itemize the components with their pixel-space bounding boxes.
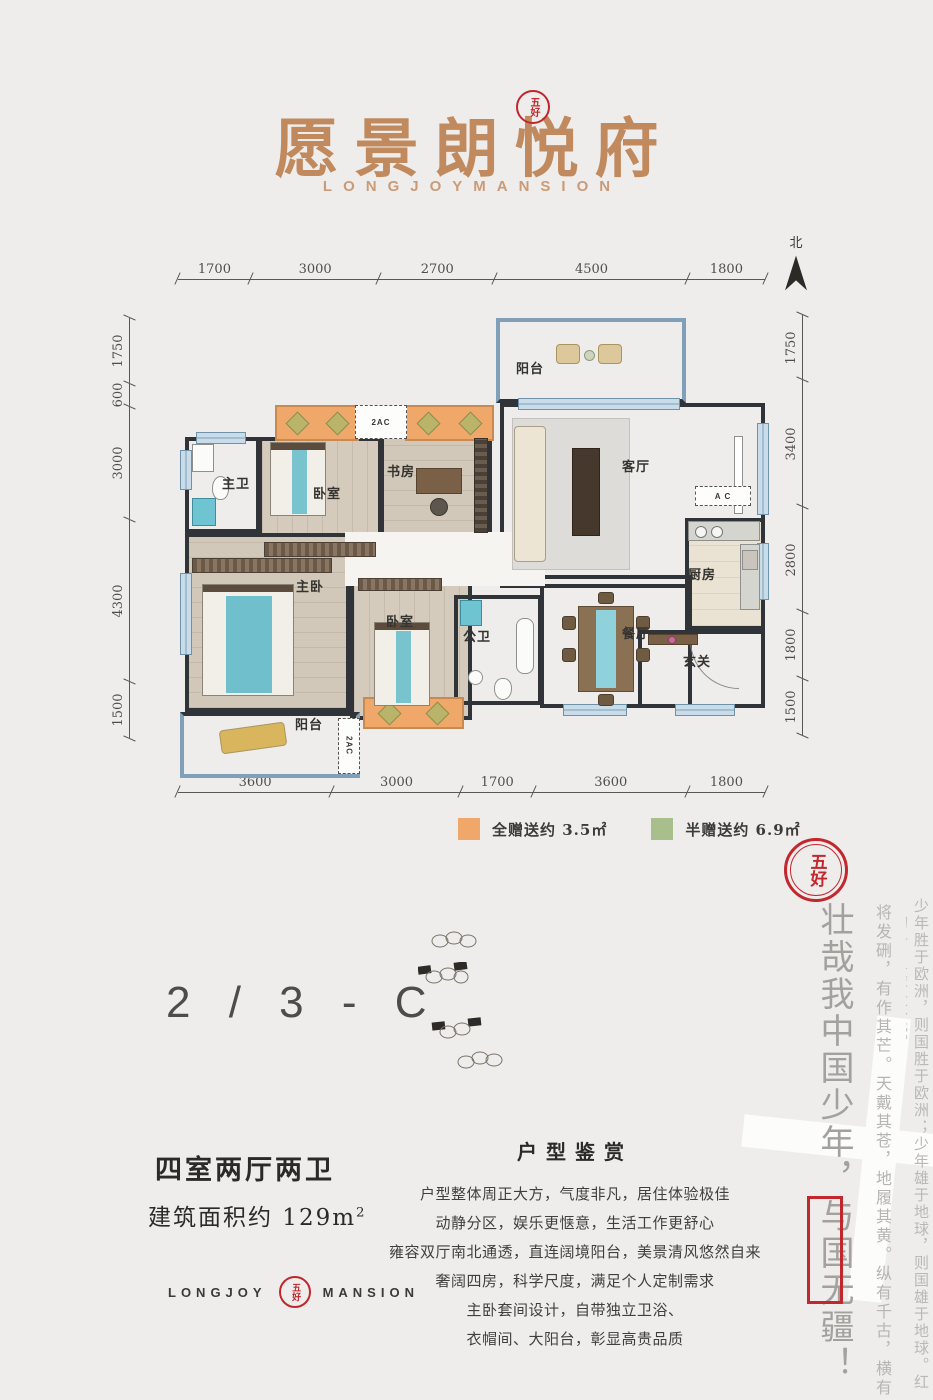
dining-chair (562, 648, 576, 662)
calligraphy-seal-icon: 五好 (784, 838, 848, 902)
brand-seal-text: 五好 (528, 97, 538, 117)
furniture-sketch-icon (456, 1048, 504, 1070)
unit-area-text: 建筑面积约 129m (148, 1205, 356, 1231)
room-label-bedroom2: 卧室 (313, 483, 341, 502)
furniture-sketch-icon (430, 1016, 482, 1040)
room-label-kitchen: 厨房 (688, 564, 716, 583)
wardrobe (358, 578, 442, 591)
dimension-ruler-left: 1750 600 3000 4300 1500 (112, 318, 130, 738)
stove (742, 550, 758, 570)
dim-label: 4500 (495, 262, 688, 277)
bed (374, 622, 430, 706)
gift-strip-bay-window-1 (275, 405, 359, 441)
master-bed (202, 584, 294, 696)
bookshelf (474, 438, 488, 533)
furniture-sketch-icon (430, 928, 478, 950)
kitchen-counter (688, 521, 760, 541)
desk-chair (430, 498, 448, 516)
dim-label: 1800 (784, 629, 799, 662)
ac-label: 2AC (345, 736, 354, 755)
legend-label: 半赠送约 6.9㎡ (685, 819, 800, 840)
window (180, 450, 192, 490)
ac-platform-top: 2AC (355, 405, 407, 439)
north-arrow-icon (785, 255, 807, 291)
brand-logo-english: LONGJOYMANSION (0, 178, 933, 195)
room-label-master-bath: 主卫 (222, 473, 250, 492)
calligraphy-column-2: 将发硎，有作其芒。天戴其苍，地履其黄。纵有千古，横有八荒。 (872, 904, 894, 1400)
room-label-living: 客厅 (622, 456, 650, 475)
dim-label: 1700 (178, 262, 251, 277)
unit-area: 建筑面积约 129m2 (148, 1198, 367, 1232)
appreciation-title: 户型鉴赏 (365, 1136, 785, 1165)
footer-word-left: LONGJOY (168, 1285, 267, 1300)
dimension-ruler-top: 1700 3000 2700 4500 1800 (178, 262, 765, 280)
pillow-icon (325, 411, 349, 435)
legend-swatch-green (651, 818, 673, 840)
dim-label: 1500 (784, 690, 799, 723)
ac-label: 2AC (371, 418, 390, 427)
legend-item-full-gift: 全赠送约 3.5㎡ (458, 818, 607, 840)
footer-seal-icon: 五好 (279, 1276, 311, 1308)
dim-label: 3400 (784, 427, 799, 460)
dim-label: 1800 (688, 262, 765, 277)
room-label-balcony-top: 阳台 (516, 358, 544, 377)
calligraphy-red-highlight-box (807, 1196, 843, 1304)
dim-label: 1500 (111, 693, 126, 726)
shower (192, 498, 216, 526)
balcony-door-window (518, 398, 680, 410)
window (196, 432, 246, 444)
north-indicator: 北 (776, 232, 816, 291)
coffee-table (572, 448, 600, 536)
wardrobe (192, 558, 332, 573)
brand-logo-chinese: 愿景朗悦府 (0, 98, 933, 190)
calligraphy-column-3: 少年胜于欧洲，则国胜于欧洲；少年雄于地球，则国雄于地球。红日初升，其道大光。 (906, 898, 932, 1400)
flower-icon (668, 636, 676, 644)
dining-chair (598, 592, 614, 604)
dim-label: 2800 (784, 543, 799, 576)
room-label-bedroom3: 卧室 (386, 611, 414, 630)
window (180, 573, 192, 655)
footer-seal-text: 五好 (290, 1283, 299, 1301)
appreciation-line: 户型整体周正大方，气度非凡，居住体验极佳 (365, 1180, 785, 1209)
dining-chair (598, 694, 614, 706)
appreciation-line: 衣帽间、大阳台，彰显高贵品质 (365, 1325, 785, 1354)
sofa (514, 426, 546, 562)
furniture-sketch-icon (418, 962, 470, 986)
vanity (192, 444, 214, 472)
floor-plan: 2AC A C 2AC (178, 318, 765, 778)
window (563, 704, 627, 716)
poster-page: 愿景朗悦府 五好 LONGJOYMANSION 北 1700 3000 2700… (0, 0, 933, 1400)
washer (460, 600, 482, 626)
dining-chair (636, 648, 650, 662)
room-label-foyer: 玄关 (683, 651, 711, 670)
ac-platform-right: A C (695, 486, 751, 506)
north-label: 北 (776, 232, 816, 251)
dim-label: 3000 (111, 446, 126, 479)
legend-label: 全赠送约 3.5㎡ (492, 819, 607, 840)
window (675, 704, 735, 716)
room-label-study: 书房 (387, 461, 415, 480)
gift-strip-bay-window-2 (405, 405, 494, 441)
sink-icon (711, 526, 723, 538)
ac-label: A C (715, 492, 731, 501)
calligraphy-main-text: 壮哉我中国少年，与国无疆！ (810, 902, 859, 1400)
desk (416, 468, 462, 494)
legend-swatch-orange (458, 818, 480, 840)
brand-seal-icon: 五好 (516, 90, 550, 124)
basin (468, 670, 483, 685)
wardrobe (264, 542, 376, 557)
dim-label: 4300 (111, 584, 126, 617)
unit-code: 2 / 3 - C (166, 978, 440, 1028)
bed (270, 442, 326, 516)
dim-label: 1750 (784, 331, 799, 364)
bathtub (516, 618, 534, 674)
toilet (494, 678, 512, 700)
balcony-table (584, 350, 595, 361)
room-label-dining: 餐厅 (622, 623, 650, 642)
dim-label: 3000 (251, 262, 380, 277)
unit-layout-title: 四室两厅两卫 (155, 1148, 335, 1187)
room-label-public-bath: 公卫 (463, 626, 491, 645)
sink-icon (695, 526, 707, 538)
room-label-master-bedroom: 主卧 (296, 576, 324, 595)
calligraphy-seal-text: 五好 (808, 853, 825, 887)
dining-table (578, 606, 634, 692)
gift-area-legend: 全赠送约 3.5㎡ 半赠送约 6.9㎡ (458, 818, 801, 840)
pillow-icon (285, 411, 309, 435)
balcony-chair (556, 344, 580, 364)
room-label-balcony-bottom: 阳台 (295, 714, 323, 733)
ac-platform-bottom: 2AC (338, 718, 360, 774)
window (757, 423, 769, 515)
pillow-icon (416, 411, 440, 435)
dining-chair (562, 616, 576, 630)
legend-item-half-gift: 半赠送约 6.9㎡ (651, 818, 800, 840)
dimension-ruler-right: 1750 3400 2800 1800 1500 (785, 315, 803, 735)
pillow-icon (459, 411, 483, 435)
balcony-chair (598, 344, 622, 364)
dim-label: 1750 (111, 334, 126, 367)
dim-label: 2700 (379, 262, 495, 277)
